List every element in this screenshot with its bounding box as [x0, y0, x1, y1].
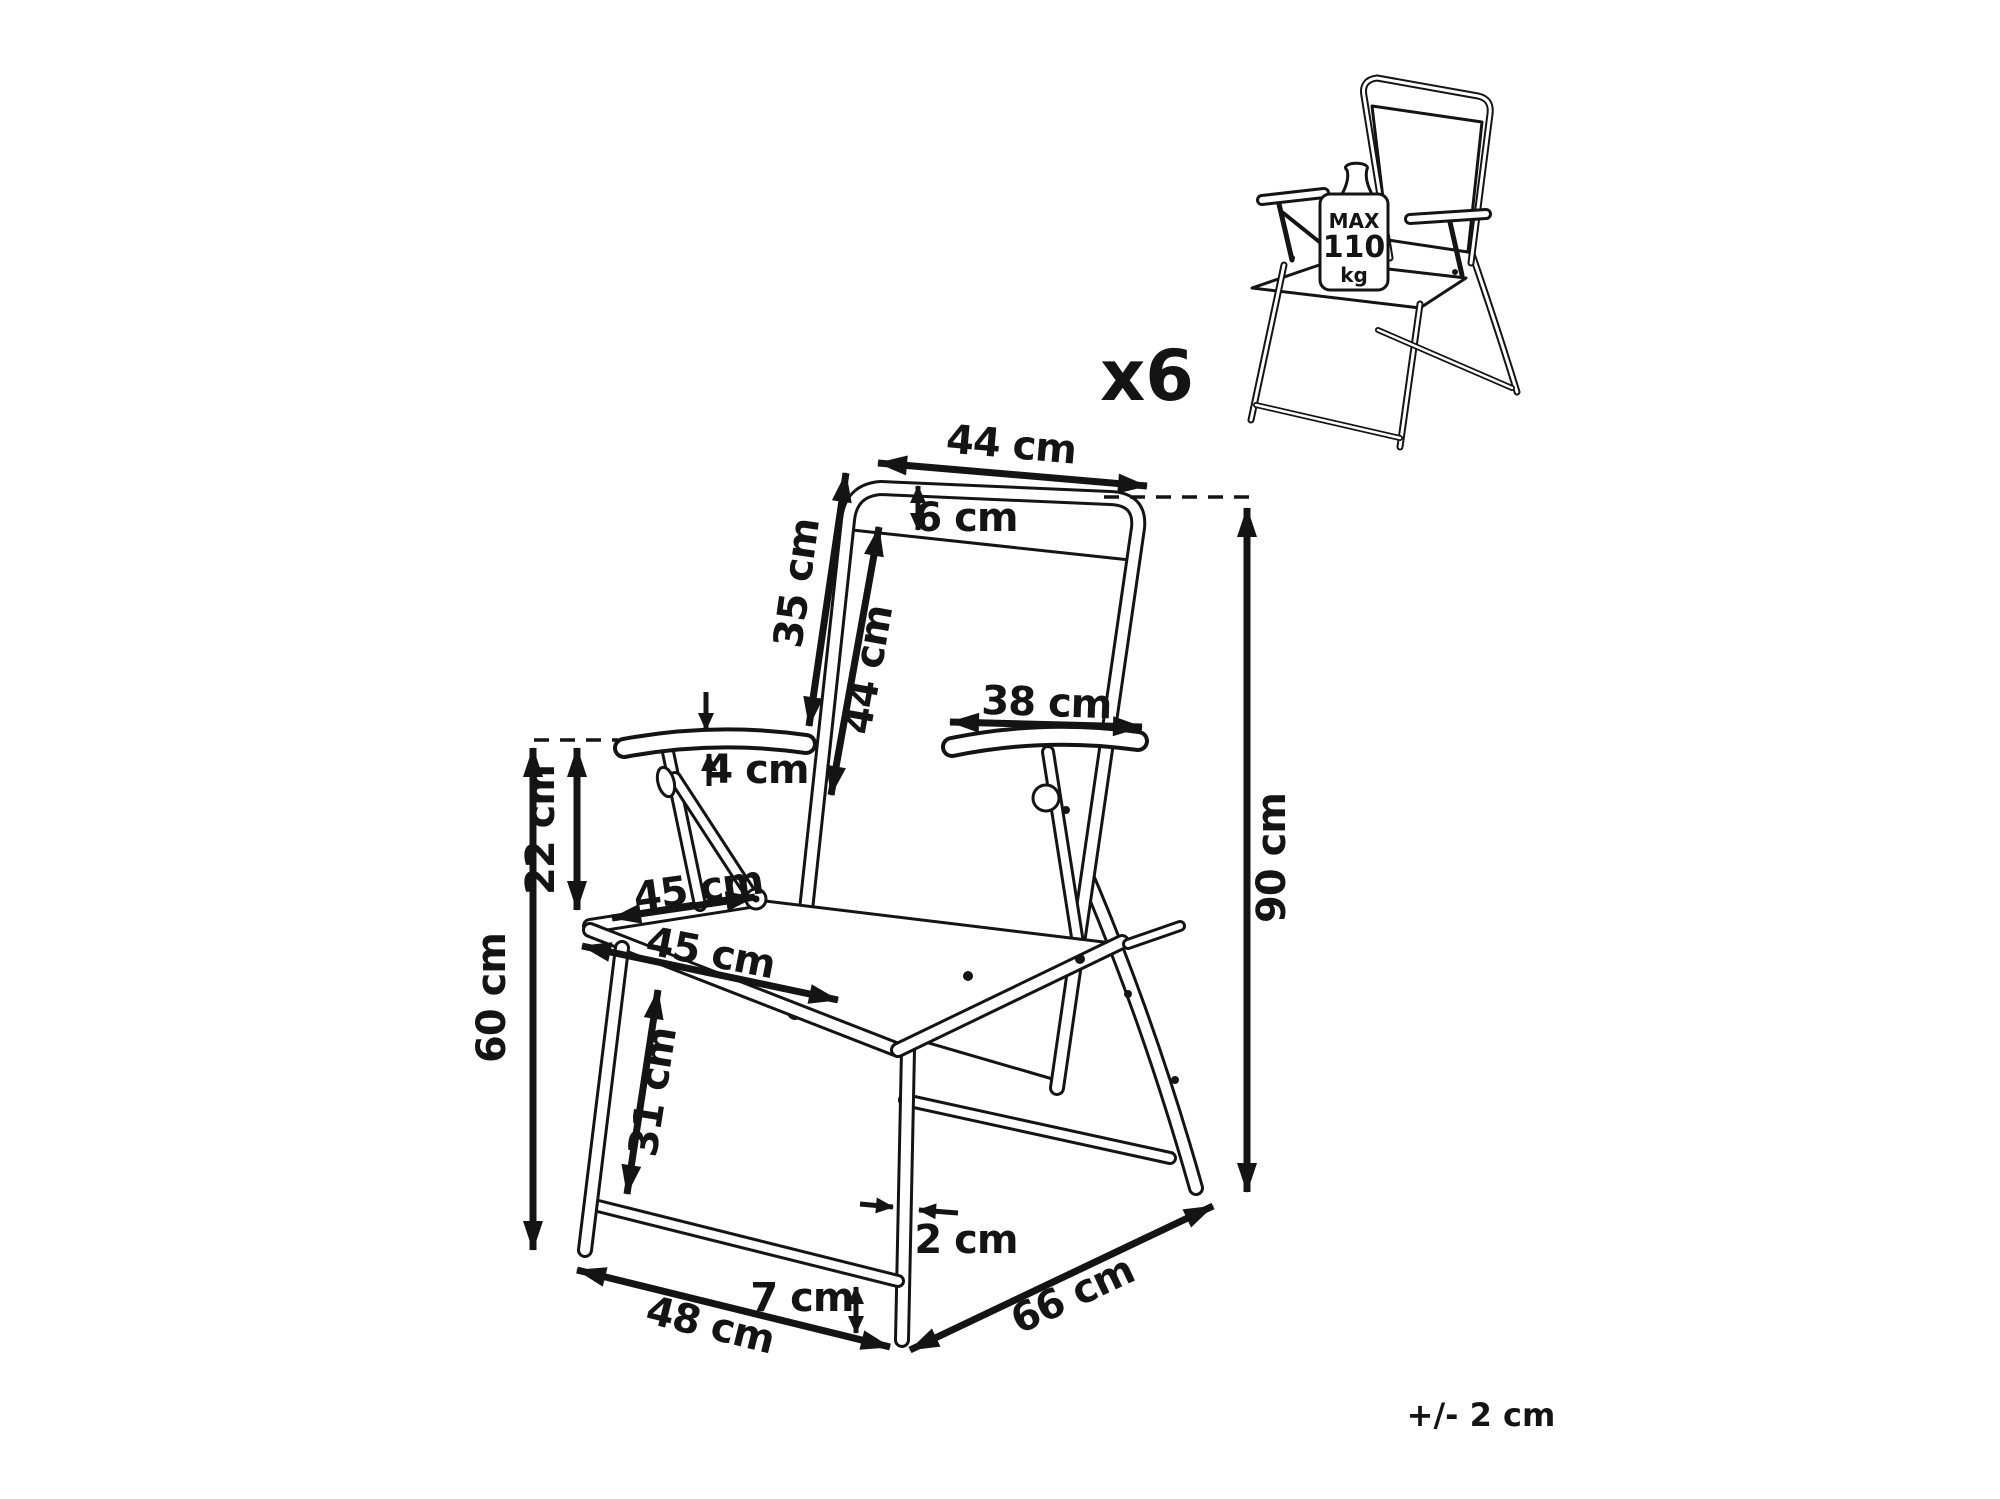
dim-label-headrest-height: 6 cm: [914, 495, 1017, 541]
dim-label-back-upper-length: 35 cm: [765, 516, 829, 651]
weight-neck: [1341, 163, 1373, 196]
dim-label-leg-clearance: 31 cm: [620, 1024, 686, 1160]
dim-label-armrest-height: 60 cm: [469, 933, 515, 1063]
diagram-page: 44 cm 6 cm 35 cm 44 cm 38 cm 4 cm 22 cm …: [0, 0, 2000, 1499]
tolerance-note: +/- 2 cm: [1407, 1396, 1556, 1434]
dim-label-tube-diameter: 2 cm: [914, 1217, 1017, 1263]
dim-arrow-tube-right: [919, 1210, 958, 1213]
chair-dimension-diagram: 44 cm 6 cm 35 cm 44 cm 38 cm 4 cm 22 cm …: [0, 0, 2000, 1499]
dim-label-total-height: 90 cm: [1249, 793, 1295, 923]
max-load-line2: 110: [1323, 230, 1386, 265]
right-fold-hinge: [1033, 785, 1059, 811]
max-load-line3: kg: [1340, 263, 1368, 287]
quantity-label: x6: [1100, 335, 1194, 417]
dim-label-armrest-length: 38 cm: [981, 678, 1113, 729]
dim-label-armrest-thickness: 4 cm: [705, 747, 808, 793]
dim-label-back-top-width: 44 cm: [944, 416, 1077, 473]
dim-label-armrest-drop: 22 cm: [518, 765, 564, 895]
dim-arrow-tube-left: [860, 1204, 893, 1207]
dim-label-base-depth: 66 cm: [1004, 1247, 1141, 1344]
reference-chair-drawing: MAX 110 kg: [1251, 78, 1517, 447]
